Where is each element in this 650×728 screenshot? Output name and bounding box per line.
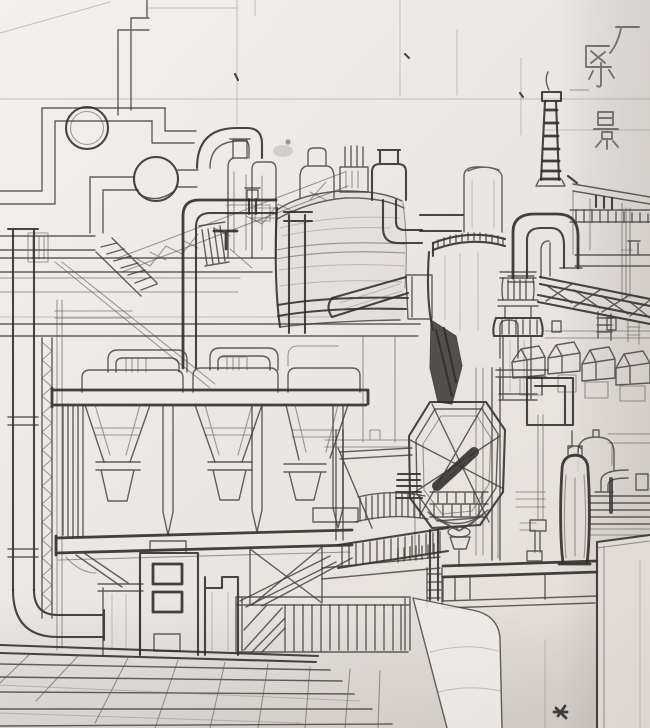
right-wall	[597, 535, 650, 728]
factory-sketch	[0, 0, 650, 728]
sketch-photo: 厂区小景	[0, 0, 650, 728]
graphite-smudge	[273, 145, 293, 157]
